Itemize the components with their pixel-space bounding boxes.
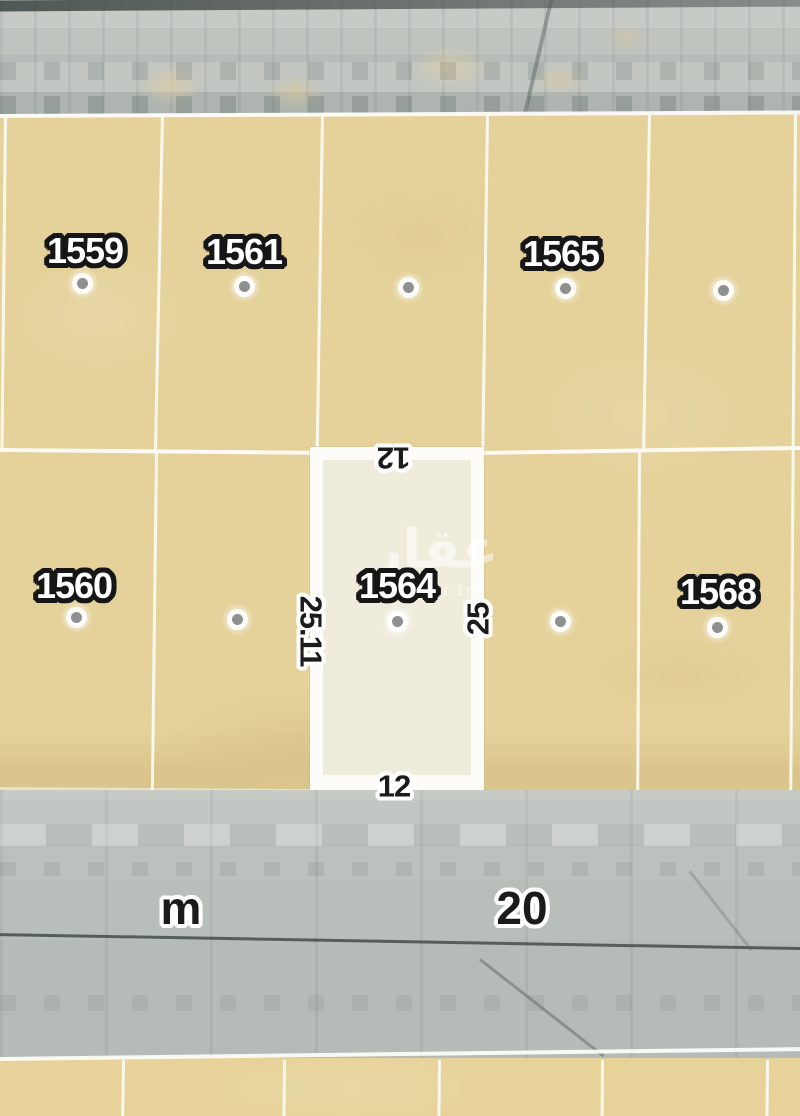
road-top-edge-shadow (0, 0, 800, 11)
plot-marker-dot[interactable] (71, 612, 82, 623)
road-slab-joints (0, 862, 800, 876)
plot-marker-dot[interactable] (239, 281, 250, 292)
plot-label-1561[interactable]: 1561 (206, 234, 282, 270)
street-unit-label: m (161, 885, 202, 931)
dimension-bottom: 12 (378, 771, 410, 802)
plot-label-1564[interactable]: 1564 (359, 568, 435, 604)
plot-region-1568[interactable] (638, 450, 800, 790)
road-lower-joints (0, 995, 800, 1011)
plot-marker-dot[interactable] (403, 282, 414, 293)
road-top-lower-dashes (0, 96, 800, 114)
plot-marker-dot[interactable] (712, 622, 723, 633)
plot-region-1565[interactable] (486, 114, 648, 450)
road-crack-diagonal (689, 870, 753, 950)
plot-marker-dot[interactable] (77, 278, 88, 289)
plot-region-unlabeled-2[interactable] (648, 114, 800, 450)
map-canvas: عقار sa.aqar.fm 1559 1561 1565 1560 1568… (0, 0, 800, 1116)
pole-shadow (522, 0, 553, 117)
plot-row-bottom-region[interactable] (0, 1058, 800, 1116)
plot-marker-dot[interactable] (232, 614, 243, 625)
plot-label-1565[interactable]: 1565 (523, 236, 599, 272)
road-slab-band (0, 824, 800, 846)
plot-marker-dot[interactable] (392, 616, 403, 627)
plot-marker-dot[interactable] (718, 285, 729, 296)
road-top (0, 0, 800, 114)
plot-label-1568[interactable]: 1568 (680, 574, 756, 610)
plot-region-unlabeled-1[interactable] (322, 114, 486, 450)
plot-label-1560[interactable]: 1560 (36, 568, 112, 604)
plot-marker-dot[interactable] (560, 283, 571, 294)
pole-shadow-diagonal (479, 958, 605, 1057)
road-bottom (0, 790, 800, 1058)
dimension-left: 25.11 (296, 596, 327, 667)
dimension-right: 25 (463, 603, 494, 635)
street-width-label: 20 (496, 885, 547, 931)
plot-marker-dot[interactable] (555, 616, 566, 627)
road-center-line (0, 933, 800, 950)
dimension-top: 12 (378, 443, 410, 474)
road-top-curb-dashes (0, 62, 800, 80)
plot-label-1559[interactable]: 1559 (47, 233, 123, 269)
